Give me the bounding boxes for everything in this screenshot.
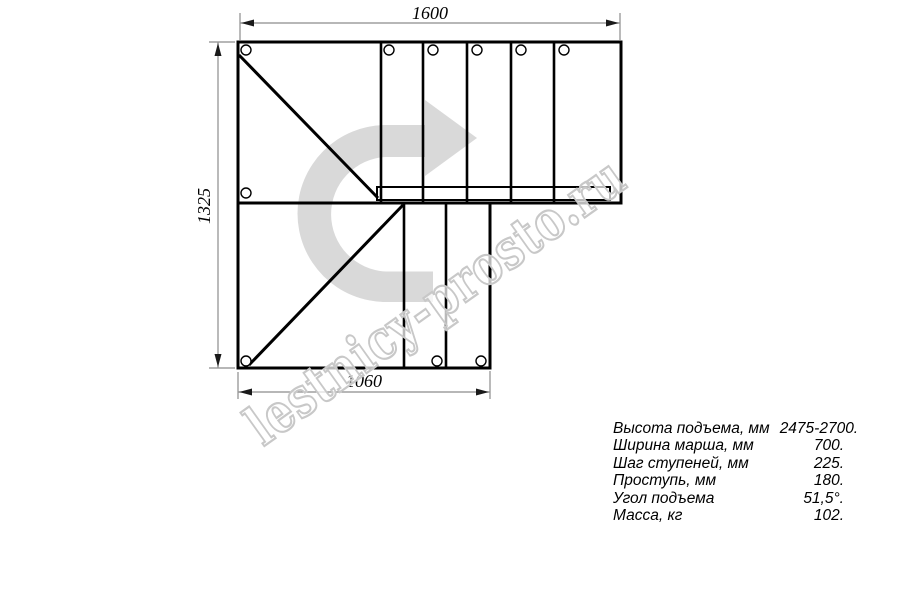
dimension-label-left: 1325 (194, 188, 214, 224)
spec-value: 102. (804, 507, 844, 524)
stair-plan-page: 1600 1325 1060 lestnicy-prosto.ru Высота… (0, 0, 900, 600)
mounting-hole (241, 356, 251, 366)
dimension-label-top: 1600 (412, 3, 448, 23)
mounting-hole (476, 356, 486, 366)
mounting-hole (472, 45, 482, 55)
spec-row: Проступь, мм 180. (613, 472, 844, 489)
spec-label: Ширина марша, мм (613, 437, 754, 454)
mounting-hole (384, 45, 394, 55)
spec-value: 51,5°. (793, 490, 844, 507)
spec-label: Угол подъема (613, 490, 714, 507)
spec-label: Масса, кг (613, 507, 682, 524)
spec-row: Масса, кг 102. (613, 507, 844, 524)
mounting-hole (559, 45, 569, 55)
mounting-hole (241, 188, 251, 198)
spec-label: Шаг ступеней, мм (613, 455, 749, 472)
spec-row: Угол подъема 51,5°. (613, 490, 844, 507)
spec-label: Проступь, мм (613, 472, 716, 489)
watermark: lestnicy-prosto.ru (233, 144, 637, 457)
spec-label: Высота подъема, мм (613, 420, 770, 437)
spec-value: 2475-2700. (770, 420, 858, 437)
spec-value: 180. (804, 472, 844, 489)
mounting-hole (516, 45, 526, 55)
spec-value: 700. (804, 437, 844, 454)
spec-row: Ширина марша, мм 700. (613, 437, 844, 454)
spec-value: 225. (804, 455, 844, 472)
spec-row: Высота подъема, мм 2475-2700. (613, 420, 844, 437)
mounting-hole (428, 45, 438, 55)
specs-table: Высота подъема, мм 2475-2700. Ширина мар… (613, 420, 844, 525)
spec-row: Шаг ступеней, мм 225. (613, 455, 844, 472)
mounting-hole (241, 45, 251, 55)
mounting-hole (432, 356, 442, 366)
